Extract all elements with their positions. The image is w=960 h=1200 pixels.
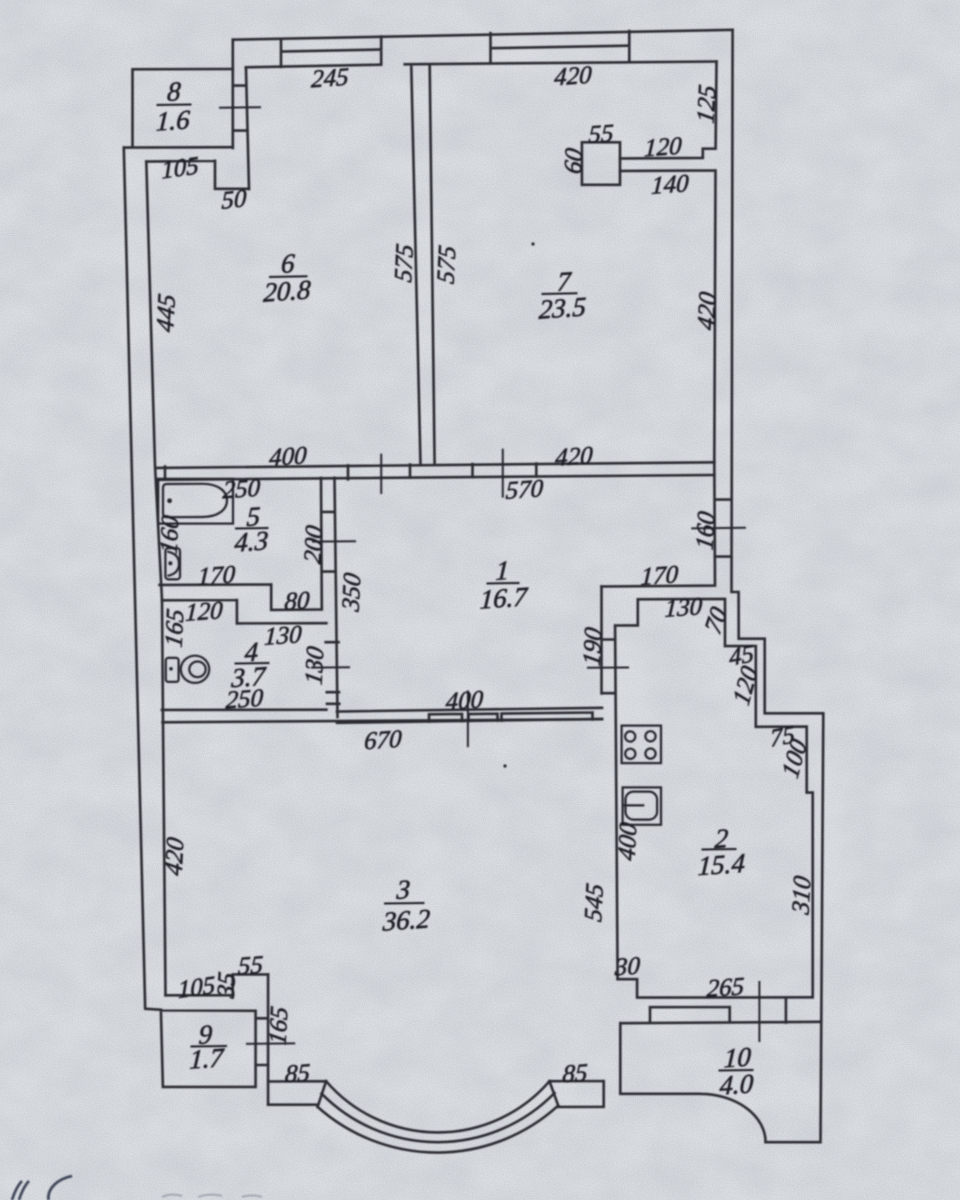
svg-text:6: 6 <box>280 248 295 279</box>
svg-text:55: 55 <box>588 120 614 149</box>
svg-text:50: 50 <box>221 185 247 215</box>
svg-text:30: 30 <box>613 953 641 982</box>
svg-text:130: 130 <box>264 621 303 651</box>
svg-text:16.7: 16.7 <box>479 581 529 614</box>
svg-text:105: 105 <box>178 972 216 1004</box>
svg-text:130: 130 <box>301 644 330 687</box>
svg-text:15.4: 15.4 <box>697 848 746 881</box>
svg-text:120: 120 <box>644 133 683 163</box>
svg-text:400: 400 <box>614 820 643 863</box>
svg-text:350: 350 <box>338 571 367 615</box>
svg-text:1.6: 1.6 <box>155 104 191 136</box>
svg-text:1.7: 1.7 <box>189 1042 226 1075</box>
svg-text:265: 265 <box>706 973 745 1003</box>
svg-text:4.0: 4.0 <box>719 1068 755 1100</box>
svg-text:545: 545 <box>580 882 609 924</box>
svg-text:8: 8 <box>166 76 181 107</box>
svg-text:85: 85 <box>284 1060 310 1089</box>
svg-text:670: 670 <box>364 726 403 756</box>
svg-text:165: 165 <box>161 607 190 649</box>
svg-text:140: 140 <box>651 170 690 200</box>
svg-text:36.2: 36.2 <box>381 903 431 936</box>
svg-text:170: 170 <box>197 561 236 591</box>
svg-text:400: 400 <box>269 442 308 472</box>
svg-text:20.8: 20.8 <box>263 274 312 307</box>
svg-text:575: 575 <box>433 244 462 286</box>
svg-text:245: 245 <box>311 64 350 94</box>
svg-text:1: 1 <box>495 555 510 586</box>
svg-text:400: 400 <box>445 686 484 716</box>
svg-text:60: 60 <box>560 146 588 176</box>
svg-text:190: 190 <box>579 625 608 668</box>
svg-text:250: 250 <box>222 475 261 505</box>
svg-text:3: 3 <box>395 874 411 905</box>
svg-text:160: 160 <box>156 513 185 556</box>
svg-text:445: 445 <box>152 292 181 334</box>
svg-text:130: 130 <box>664 593 703 623</box>
svg-text:420: 420 <box>554 62 593 92</box>
svg-text:85: 85 <box>562 1060 588 1089</box>
svg-text:170: 170 <box>640 561 679 591</box>
svg-text:120: 120 <box>185 597 224 627</box>
svg-text:420: 420 <box>555 442 594 472</box>
svg-text:165: 165 <box>265 1005 294 1047</box>
svg-text:55: 55 <box>237 952 263 981</box>
svg-text:310: 310 <box>788 874 817 918</box>
svg-text:125: 125 <box>693 83 722 125</box>
svg-text:250: 250 <box>225 685 264 715</box>
svg-text:570: 570 <box>505 475 544 505</box>
svg-text:80: 80 <box>284 587 311 616</box>
svg-text:23.5: 23.5 <box>538 291 587 324</box>
svg-text:200: 200 <box>300 523 329 566</box>
svg-text:575: 575 <box>390 242 419 284</box>
svg-text:160: 160 <box>692 509 721 552</box>
svg-text:4.3: 4.3 <box>234 525 269 557</box>
svg-text:420: 420 <box>693 290 722 333</box>
svg-text:420: 420 <box>161 835 190 878</box>
svg-text:105: 105 <box>161 152 199 184</box>
